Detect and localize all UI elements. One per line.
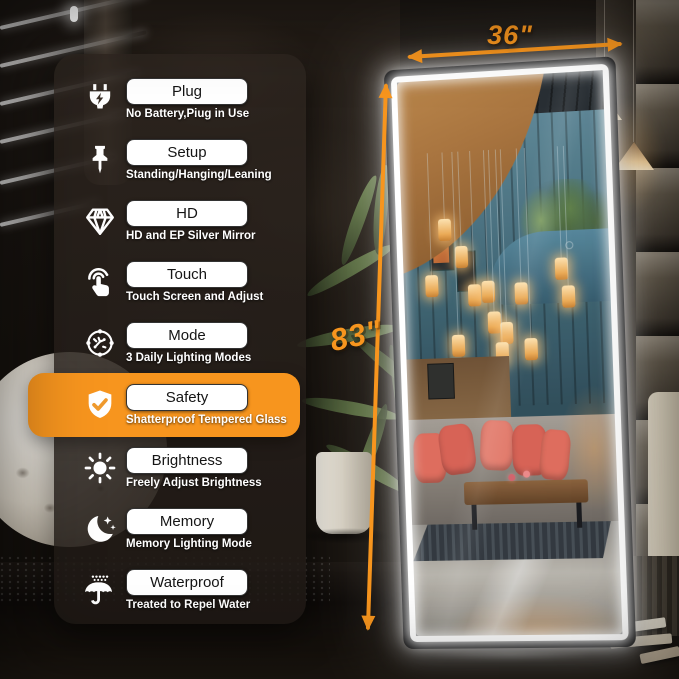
feature-label: Plug — [172, 83, 202, 100]
feature-row-hd: HD HD and EP Silver Mirror — [82, 190, 306, 251]
width-dimension-label: 36" — [478, 20, 542, 51]
feature-label-pill: HD — [126, 200, 248, 227]
feature-subtitle: Freely Adjust Brightness — [126, 477, 262, 489]
feature-label-pill: Touch — [126, 261, 248, 288]
feature-subtitle: 3 Daily Lighting Modes — [126, 352, 251, 364]
feature-label: Touch — [167, 266, 207, 283]
feature-subtitle: No Battery,Piug in Use — [126, 108, 249, 120]
plug-icon — [82, 81, 118, 117]
umbrella-icon — [82, 572, 118, 608]
feature-label-pill: Setup — [126, 139, 248, 166]
glass-sheen — [397, 70, 623, 636]
mode-icon — [82, 325, 118, 361]
plant-pot-shadow — [300, 528, 395, 544]
feature-label: Brightness — [152, 452, 223, 469]
feature-subtitle: Shatterproof Tempered Glass — [126, 414, 287, 426]
feature-label: Memory — [160, 513, 214, 530]
feature-row-safety: Safety Shatterproof Tempered Glass — [28, 373, 300, 437]
product-infographic: 36" 83" Plug No Battery,Piug in Use Setu… — [0, 0, 679, 679]
feature-label: Safety — [166, 389, 209, 406]
feature-row-touch: Touch Touch Screen and Adjust — [82, 251, 306, 312]
ottoman — [648, 392, 679, 582]
mirror-reflection-scene — [397, 70, 623, 636]
feature-label-pill: Brightness — [126, 447, 248, 474]
pin-icon — [82, 142, 118, 178]
feature-label-pill: Safety — [126, 384, 248, 411]
feature-subtitle: HD and EP Silver Mirror — [126, 230, 256, 242]
sun-icon — [82, 450, 118, 486]
feature-row-mode: Mode 3 Daily Lighting Modes — [82, 312, 306, 373]
feature-label-pill: Waterproof — [126, 569, 248, 596]
moon-stars-icon — [82, 511, 118, 547]
pendant-wire — [633, 0, 634, 142]
feature-subtitle: Standing/Hanging/Leaning — [126, 169, 272, 181]
touch-icon — [82, 264, 118, 300]
feature-row-brightness: Brightness Freely Adjust Brightness — [82, 437, 306, 498]
feature-row-plug: Plug No Battery,Piug in Use — [82, 68, 306, 129]
feature-label: HD — [176, 205, 198, 222]
feature-label: Mode — [168, 327, 206, 344]
diamond-icon — [82, 203, 118, 239]
feature-row-setup: Setup Standing/Hanging/Leaning — [82, 129, 306, 190]
feature-row-waterproof: Waterproof Treated to Repel Water — [82, 559, 306, 620]
feature-subtitle: Memory Lighting Mode — [126, 538, 252, 550]
feature-label-pill: Plug — [126, 78, 248, 105]
feature-subtitle: Treated to Repel Water — [126, 599, 250, 611]
shield-check-icon — [82, 387, 118, 423]
led-full-length-mirror — [384, 56, 636, 649]
feature-row-memory: Memory Memory Lighting Mode — [82, 498, 306, 559]
plant-pot — [316, 452, 372, 534]
features-panel: Plug No Battery,Piug in Use Setup Standi… — [54, 54, 306, 624]
feature-label-pill: Mode — [126, 322, 248, 349]
mirror-frame — [384, 56, 636, 649]
feature-subtitle: Touch Screen and Adjust — [126, 291, 263, 303]
feature-label: Setup — [167, 144, 206, 161]
feature-label-pill: Memory — [126, 508, 248, 535]
feature-label: Waterproof — [150, 574, 224, 591]
